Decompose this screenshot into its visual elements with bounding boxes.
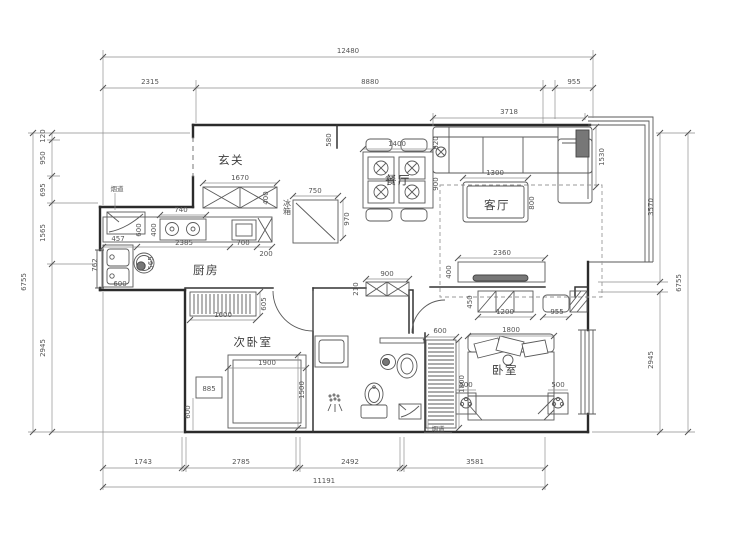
exterior-walls [95,117,653,432]
toilet [361,383,387,418]
dim-top-3: 955 [567,78,580,86]
dim-bottom-4: 3581 [466,458,484,466]
bedroom-dresser [478,291,587,312]
dim-sofa-l: 1530 [598,148,606,166]
dim-stool-w: 955 [550,308,563,316]
dim-living-width: 3718 [500,108,518,116]
dim-table-gap: 820 [432,136,440,149]
dim-coffee-w: 1300 [486,169,504,177]
dim-right-1: 3570 [647,198,655,216]
dim-cab2-d: 605 [260,297,268,310]
fridge [293,200,338,243]
dim-bed-w: 1800 [502,326,520,334]
dim-fridge-w: 750 [308,187,321,195]
dim-left-2: 950 [39,151,47,164]
dim-left-5: 2945 [39,339,47,357]
dim-counter-d: 600 [135,223,143,236]
dim-ward-w: 600 [433,327,446,335]
dim-tv-w: 2360 [493,249,511,257]
washbasin [380,338,424,378]
dim-table-w: 1400 [388,140,406,148]
dim-stove-d: 400 [150,223,158,236]
dim-left-total: 6755 [20,273,28,291]
flue-leaders: 烟道 烟道 [111,184,453,433]
dim-bed2-w: 1900 [258,359,276,367]
dim-sink-w: 457 [111,235,124,243]
room-bedroom2: 次卧室 [234,335,273,349]
tv [473,275,528,281]
dim-fridge-d: 970 [343,212,351,225]
dim-sink-d: 762 [91,258,99,271]
tv-cabinet [458,262,545,282]
dim-shoe-d: 400 [262,191,270,204]
dim-bottom-1: 1743 [134,458,152,466]
bedroom-wardrobe-striped [426,340,456,428]
dim-stove-w: 740 [174,206,187,214]
room-living: 客厅 [484,198,510,212]
dim-bottom-total: 11191 [313,477,335,485]
dim-top-total: 12480 [337,47,359,55]
fridge-label: 冰箱 [283,198,292,216]
dim-cab2-w: 1600 [214,311,232,319]
dim-table-d: 900 [432,177,440,190]
bedroom2-door-arc [273,291,313,331]
floor-plan-canvas: 12480 2315 8880 955 3718 120 950 695 156… [0,0,740,557]
dim-top-1: 2315 [141,78,159,86]
flue-label-top: 烟道 [111,184,125,193]
bathroom-flue [399,404,421,419]
dim-counter-3: 200 [259,250,272,258]
chair [401,209,427,221]
dim-bottom-3: 2492 [341,458,359,466]
pillows [474,336,548,365]
dim-left-3: 695 [39,183,47,196]
dim-bed2-d: 1500 [298,381,306,399]
bed-master [456,334,568,420]
dim-right-2: 2945 [647,351,655,369]
dim-left-4: 1565 [39,224,47,242]
dim-store-w: 900 [380,270,393,278]
chair [366,209,392,221]
bottom-dimensions: 1743 2785 2492 3581 11191 [100,292,548,490]
sofa [433,127,592,203]
left-dimensions: 120 950 695 1565 2945 6755 [20,129,190,435]
dim-coffee-d: 800 [528,196,536,209]
dim-bottom-2: 2785 [232,458,250,466]
dim-top-2: 8880 [361,78,379,86]
dim-tv-d: 400 [445,265,453,278]
dim-counter-2: 700 [236,239,249,247]
right-dimensions: 3570 2945 6755 [592,130,695,435]
dim-washer: 565 [147,256,155,269]
dim-ns-right: 500 [551,381,564,389]
room-entry: 玄关 [218,153,244,167]
dim-dresser-d: 450 [466,295,474,308]
dim-ns2: 885 [202,385,215,393]
flue-label-bottom: 烟道 [432,424,446,433]
dim-shoe-w: 1670 [231,174,249,182]
interior-dimensions: 1670 400 580 750 970 740 400 600 2385 70… [91,124,606,431]
shower-head-icon [328,394,342,412]
dim-right-total: 6755 [675,274,683,292]
dim-dresser-w: 1200 [496,308,514,316]
dim-store-d: 210 [352,282,360,295]
dim-wall-580: 580 [325,133,333,146]
dim-left-1: 120 [39,129,47,142]
hall-storage [366,282,409,296]
room-kitchen: 厨房 [193,263,219,277]
dim-counter-1: 2385 [175,239,193,247]
dim-ns-left: 500 [459,381,472,389]
bathroom [315,336,424,419]
dim-sink-b: 600 [113,280,126,288]
floor-plan-page: 12480 2315 8880 955 3718 120 950 695 156… [0,0,740,557]
side-table [576,130,589,157]
dim-gap2: 600 [184,405,192,418]
doors [273,291,445,333]
room-dining: 餐厅 [385,173,411,187]
room-bedroom: 卧室 [492,363,518,377]
